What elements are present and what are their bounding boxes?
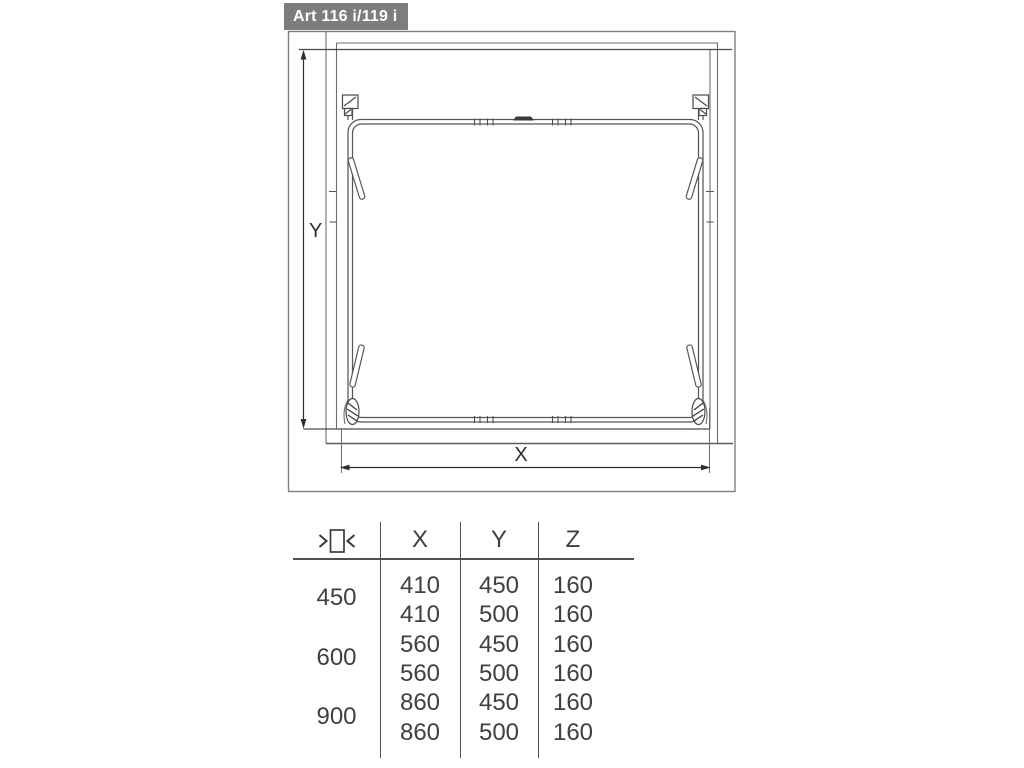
column-header-x: X: [380, 525, 460, 555]
pullout-frame-ring: [348, 109, 703, 422]
cell-x: 560: [380, 630, 460, 659]
frame-diagonal-braces: [348, 157, 704, 387]
cell-x: 560: [380, 659, 460, 688]
dimension-x-label: X: [514, 444, 527, 466]
table-row: 860 450 160: [293, 688, 634, 717]
cell-z: 160: [538, 718, 608, 747]
mounting-bracket-bottom-left-icon: [344, 399, 359, 425]
dimension-y: Y: [301, 50, 323, 429]
cell-y: 500: [460, 600, 538, 629]
cell-z: 160: [538, 630, 608, 659]
column-header-z: Z: [538, 525, 608, 555]
table-header-divider: [293, 558, 634, 560]
mounting-bracket-top-right-icon: [693, 95, 709, 116]
cell-y: 450: [460, 630, 538, 659]
column-header-y: Y: [460, 525, 538, 555]
cell-z: 160: [538, 688, 608, 717]
table-row: 860 500 160: [293, 718, 634, 747]
table-row: 410 500 160: [293, 600, 634, 629]
cell-y: 450: [460, 571, 538, 600]
cell-x: 860: [380, 718, 460, 747]
page: Y X Art 116 i/119 i X Y Z: [0, 0, 1024, 768]
mounting-bracket-bottom-right-icon: [692, 399, 707, 425]
cell-z: 160: [538, 571, 608, 600]
dimension-y-label: Y: [309, 220, 322, 242]
top-rail-center-tab: [513, 117, 534, 121]
drawing-title: Art 116 i/119 i: [284, 3, 408, 30]
cell-z: 160: [538, 600, 608, 629]
cabinet-width-arrows-icon: [293, 526, 380, 556]
cell-y: 450: [460, 688, 538, 717]
cabinet-interior-walls: [326, 32, 718, 444]
cell-x: 410: [380, 571, 460, 600]
rail-clips: [475, 119, 572, 424]
cell-z: 160: [538, 659, 608, 688]
cell-x: 860: [380, 688, 460, 717]
cell-y: 500: [460, 718, 538, 747]
cell-y: 500: [460, 659, 538, 688]
table-row: 410 450 160: [293, 571, 634, 600]
mounting-bracket-top-left-icon: [343, 95, 359, 116]
table-row: 560 450 160: [293, 630, 634, 659]
table-row: 560 500 160: [293, 659, 634, 688]
dimensions-table: X Y Z 450 600 900 410 450 160 410 500 16…: [293, 522, 634, 760]
wall-tick-marks: [329, 192, 714, 223]
cell-x: 410: [380, 600, 460, 629]
